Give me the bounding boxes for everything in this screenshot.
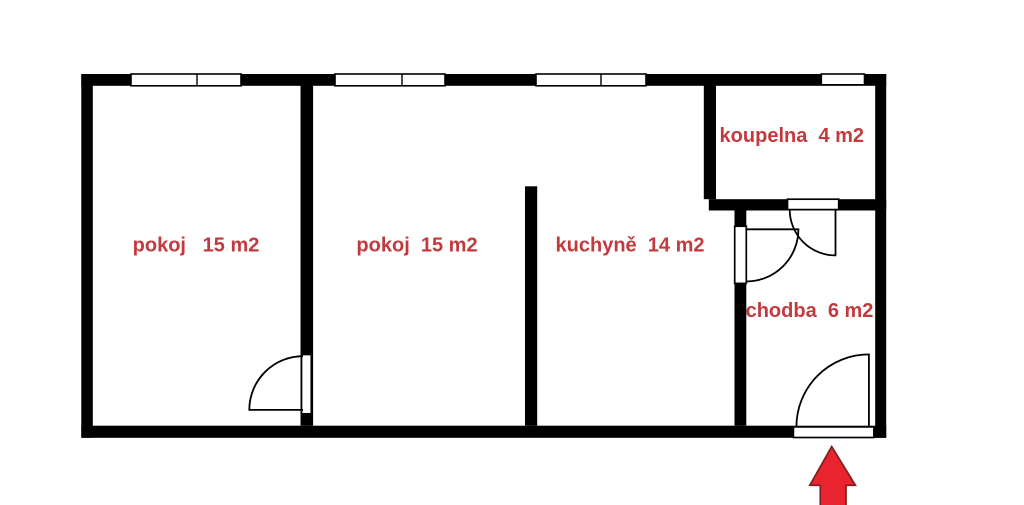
svg-text:koupelna 4 m2: koupelna 4 m2 xyxy=(720,125,865,147)
svg-text:kuchyně 14 m2: kuchyně 14 m2 xyxy=(556,234,705,256)
svg-text:chodba 6 m2: chodba 6 m2 xyxy=(746,300,874,322)
svg-text:pokoj 15 m2: pokoj 15 m2 xyxy=(133,234,260,256)
svg-text:pokoj 15 m2: pokoj 15 m2 xyxy=(356,234,477,256)
